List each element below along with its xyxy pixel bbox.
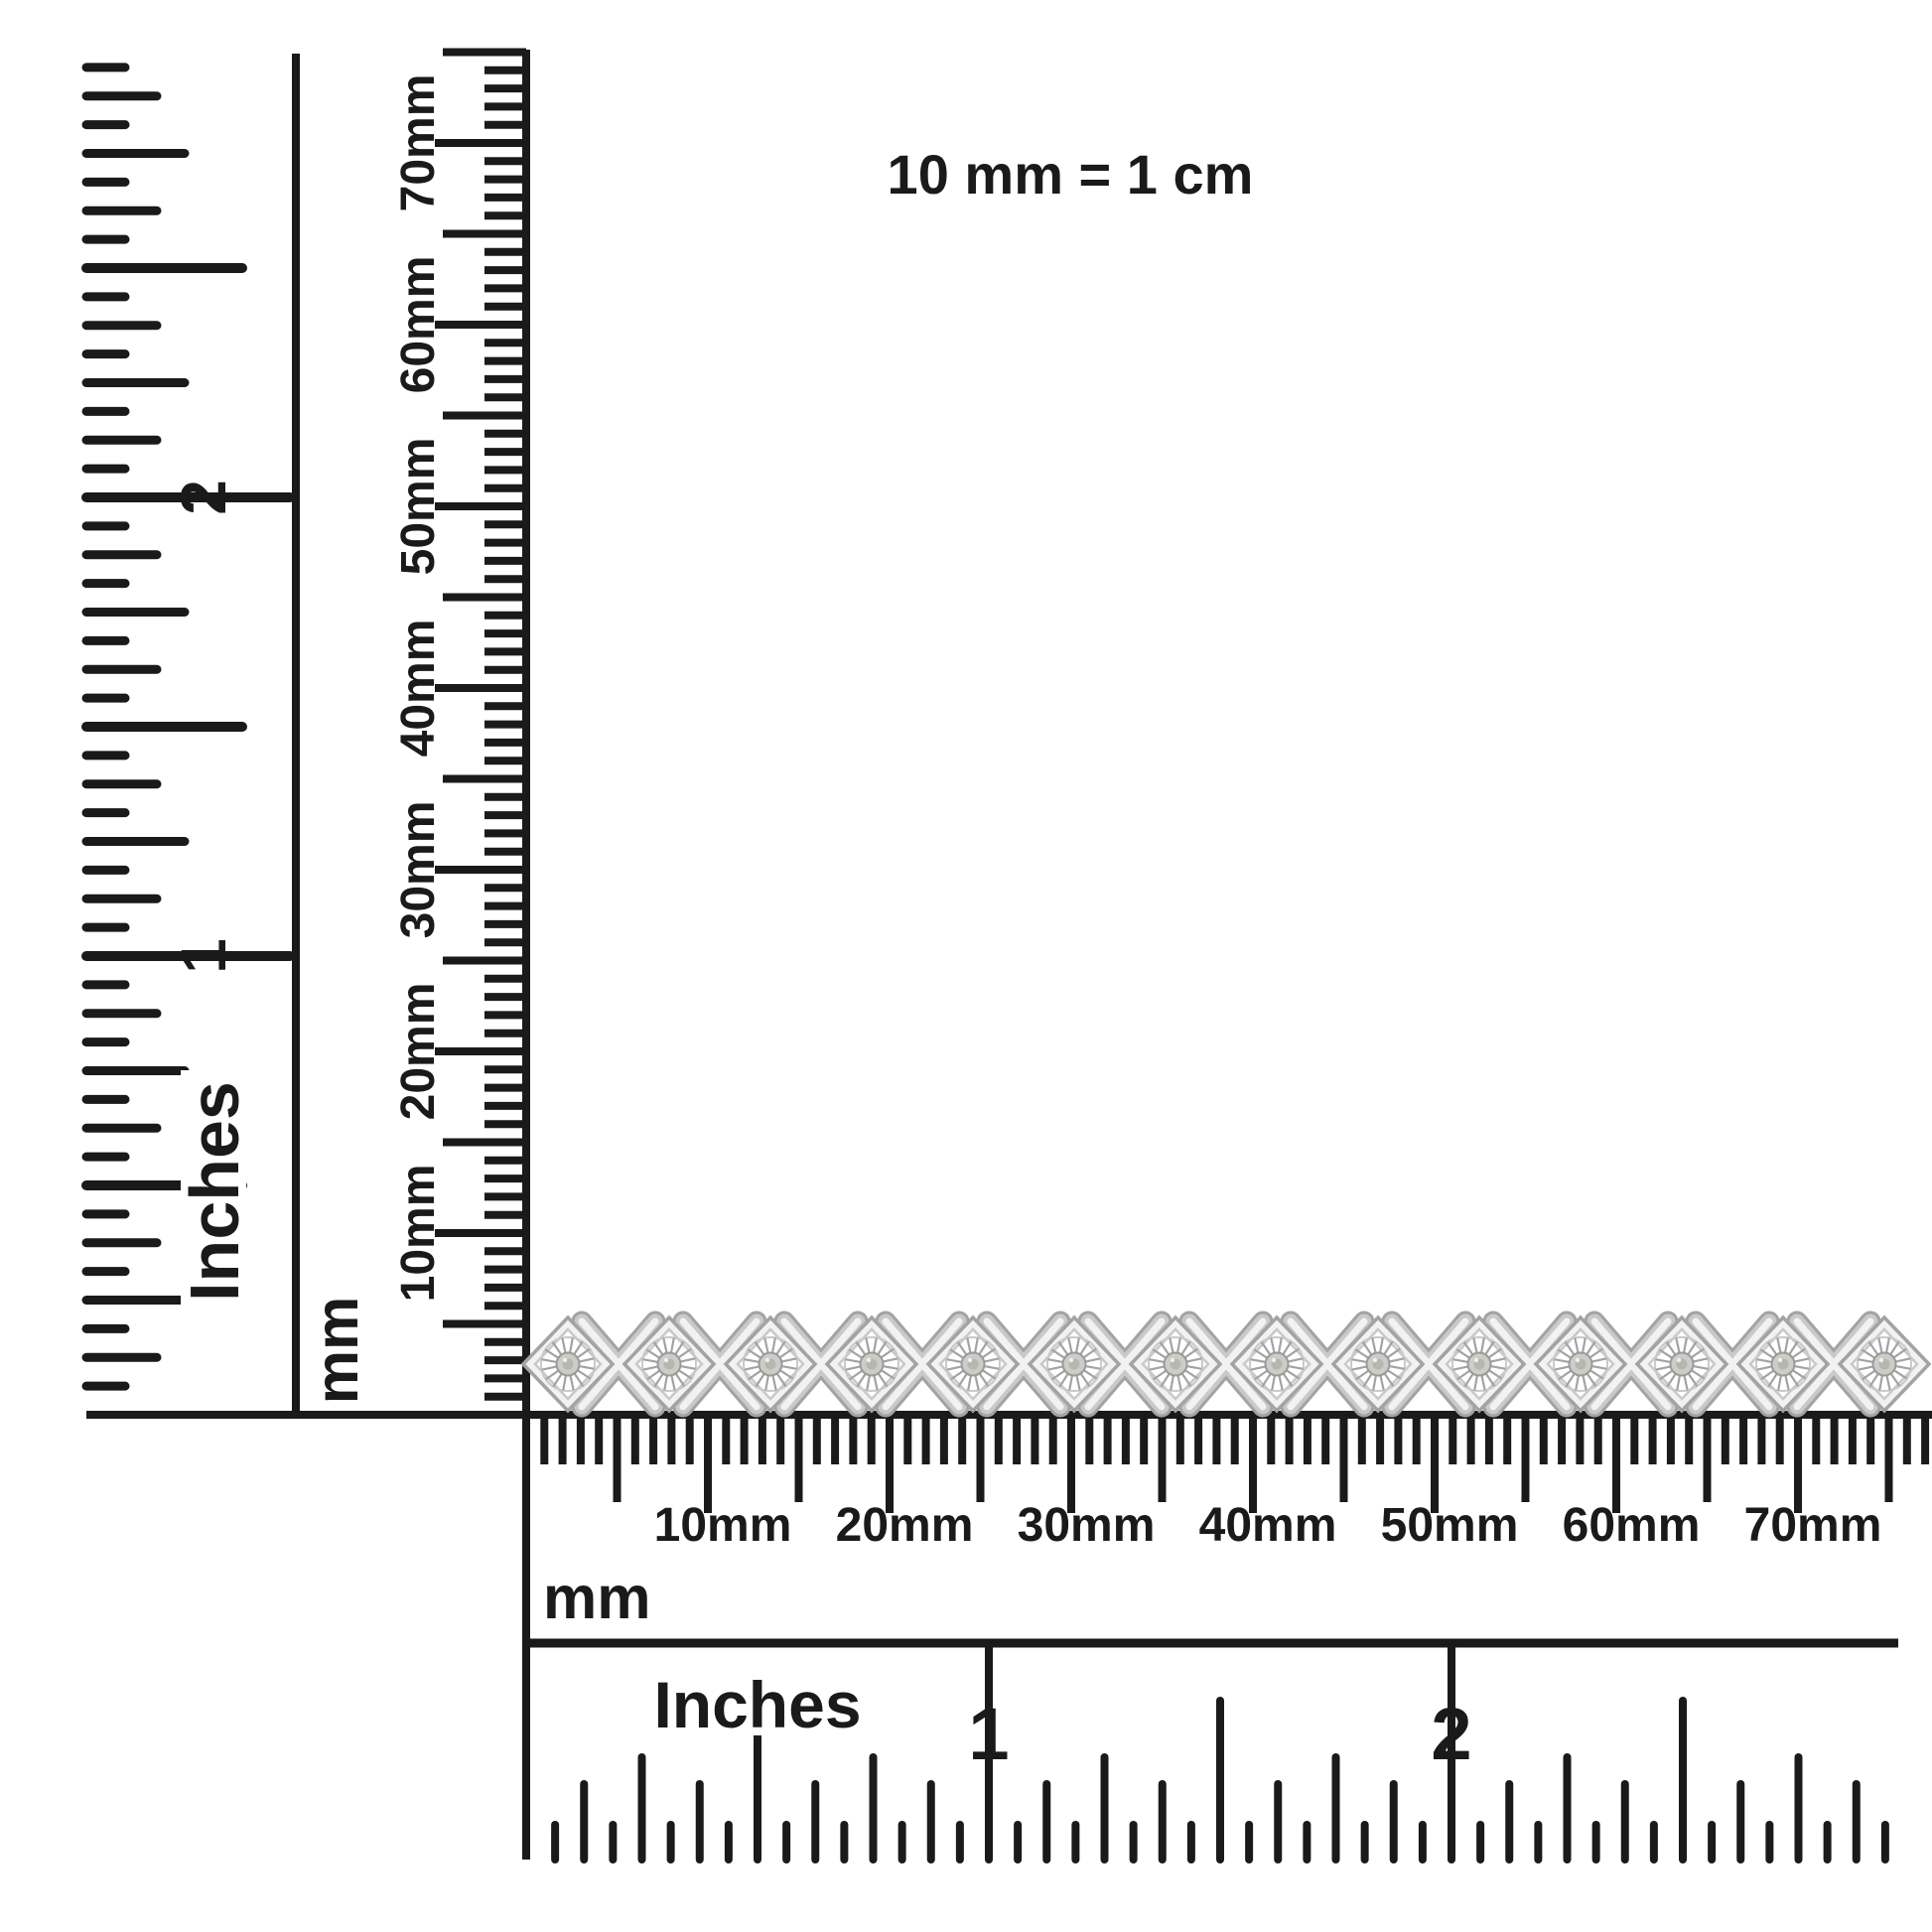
inch-tick-label: 2 [1431,1693,1471,1775]
inch-tick-label: 2 [168,480,239,515]
mm-tick-label: 10mm [392,1165,445,1303]
diamond-sparkle [563,1358,567,1362]
diamond-sparkle [1474,1358,1478,1362]
measurement-photo: 12Inches10mm20mm30mm40mm50mm60mm70mmmm10… [0,0,1932,1932]
mm-tick-label: 70mm [1744,1499,1882,1552]
horizontal-inches-ruler: Inches12 [526,1643,1898,1860]
mm-unit-label: mm [303,1297,370,1404]
diamond-sparkle [664,1358,668,1362]
diamond-sparkle [1879,1358,1883,1362]
diamond-sparkle [1576,1358,1580,1362]
diamond-sparkle [968,1358,972,1362]
mm-tick-label: 30mm [1018,1499,1156,1552]
inch-tick-label: 1 [168,938,239,974]
mm-tick-label: 60mm [1563,1499,1701,1552]
diamond-sparkle [867,1358,871,1362]
rulers-and-bracelet-scene: 12Inches10mm20mm30mm40mm50mm60mm70mmmm10… [0,0,1932,1932]
mm-tick-label: 20mm [836,1499,974,1552]
mm-tick-label: 30mm [392,801,445,939]
mm-tick-label: 10mm [654,1499,792,1552]
mm-tick-label: 60mm [392,256,445,394]
vertical-inches-ruler: 12Inches [86,54,296,1415]
horizontal-mm-ruler: 10mm20mm30mm40mm50mm60mm70mmmm [543,1419,1925,1631]
inches-unit-label: Inches [653,1668,861,1741]
diamond-sparkle [1677,1358,1681,1362]
diamond-sparkle [1069,1358,1073,1362]
inch-tick-label: 1 [968,1693,1009,1775]
mm-tick-label: 50mm [392,438,445,576]
diamond-sparkle [1171,1358,1174,1362]
diamond-sparkle [1373,1358,1377,1362]
scale-note: 10 mm = 1 cm [888,143,1254,206]
diamond-sparkle [1272,1358,1276,1362]
mm-tick-label: 40mm [1199,1499,1337,1552]
inches-unit-label: Inches [176,1081,253,1302]
mm-tick-label: 20mm [392,983,445,1121]
vertical-mm-ruler: 10mm20mm30mm40mm50mm60mm70mmmm [303,50,526,1860]
scale-note-group: 10 mm = 1 cm [888,143,1254,206]
diamond-sparkle [765,1358,769,1362]
mm-unit-label: mm [543,1564,650,1631]
bracelet [523,1317,1929,1411]
mm-tick-label: 70mm [392,74,445,212]
diamond-sparkle [1778,1358,1782,1362]
mm-tick-label: 50mm [1381,1499,1519,1552]
mm-tick-label: 40mm [392,620,445,758]
